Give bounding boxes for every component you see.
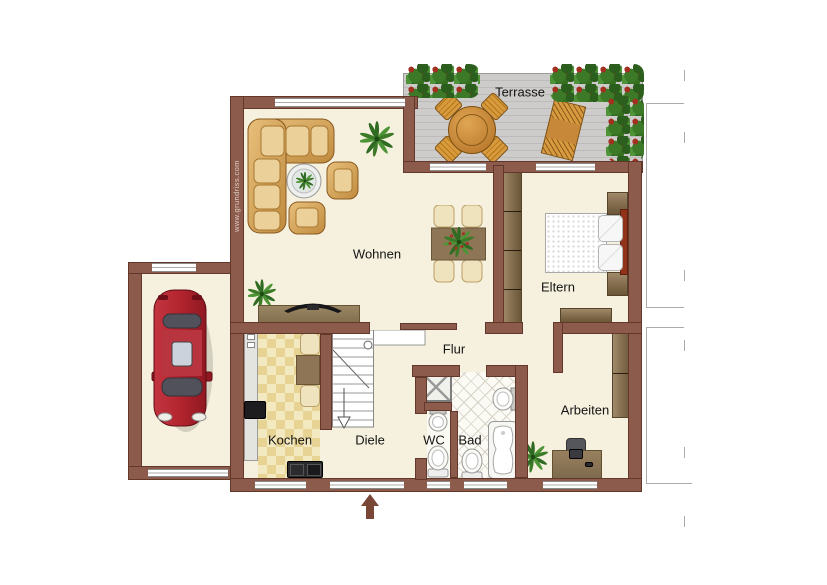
kitchen-chair [300, 333, 320, 355]
window [536, 163, 595, 171]
adjacent-outline [684, 270, 685, 281]
room-label-wc: WC [423, 433, 445, 448]
plant [360, 121, 394, 157]
table-flowers [440, 227, 478, 257]
room-label-kochen: Kochen [268, 433, 312, 448]
entrance-door [330, 481, 404, 489]
kitchen-table [296, 355, 320, 385]
wall [553, 322, 642, 334]
wall [412, 365, 460, 377]
plant [296, 172, 314, 190]
printer [569, 449, 583, 459]
adjacent-outline [684, 447, 685, 458]
armchair [327, 162, 358, 199]
wall [493, 165, 504, 334]
window [427, 481, 450, 489]
desk-phone [585, 462, 593, 467]
staircase [332, 330, 426, 432]
bathtub [488, 421, 518, 479]
room-label-arbeiten: Arbeiten [561, 403, 609, 418]
entrance-arrow [366, 506, 374, 519]
room-label-eltern: Eltern [541, 280, 575, 295]
room-label-terrasse: Terrasse [495, 85, 545, 100]
wall [424, 402, 452, 411]
wall [320, 334, 332, 430]
pillow [598, 215, 623, 242]
adjacent-outline [646, 327, 684, 328]
room-label-wohnen: Wohnen [353, 247, 401, 262]
stove [287, 461, 323, 478]
adjacent-outline [646, 483, 692, 484]
wall [515, 365, 528, 478]
nightstand [607, 272, 628, 296]
watermark: www.grundriss.com [232, 146, 241, 232]
window [255, 481, 306, 489]
adjacent-outline [646, 307, 684, 308]
wall [400, 323, 457, 330]
window [543, 481, 597, 489]
kitchen-counter [244, 330, 258, 461]
tv [283, 296, 343, 314]
floor-plan: Terrasse Wohnen Eltern Flur Kochen Diele… [0, 0, 827, 585]
car [150, 286, 214, 434]
room-label-diele: Diele [355, 433, 385, 448]
wall [415, 458, 427, 480]
room-label-flur: Flur [443, 342, 465, 357]
wall [403, 96, 415, 171]
dresser [560, 308, 612, 323]
adjacent-outline [684, 70, 685, 81]
window [152, 263, 196, 272]
terrace-table [448, 106, 496, 154]
adjacent-outline [684, 340, 685, 351]
kitchen-sink [246, 333, 257, 349]
pillow [598, 244, 623, 271]
wall [230, 322, 370, 334]
hedge [606, 96, 644, 162]
cooktop [244, 401, 266, 419]
terrace-door [430, 163, 486, 171]
entrance-arrow [361, 494, 379, 506]
kitchen-chair [300, 385, 320, 407]
armchair [289, 202, 325, 234]
adjacent-outline [646, 103, 684, 104]
hedge [406, 64, 480, 98]
garage-door [148, 469, 228, 477]
wall [553, 322, 563, 373]
wall [128, 262, 142, 480]
window [464, 481, 507, 489]
window [275, 98, 405, 107]
adjacent-outline [646, 103, 647, 308]
wardrobe [502, 172, 522, 330]
adjacent-outline [684, 516, 685, 527]
wall [450, 411, 458, 478]
wc-sink [427, 408, 449, 432]
adjacent-outline [646, 327, 647, 483]
wc-toilet [426, 445, 450, 478]
adjacent-outline [684, 132, 685, 143]
bad-toilet [459, 448, 485, 481]
room-label-bad: Bad [458, 433, 481, 448]
wall [485, 322, 523, 334]
